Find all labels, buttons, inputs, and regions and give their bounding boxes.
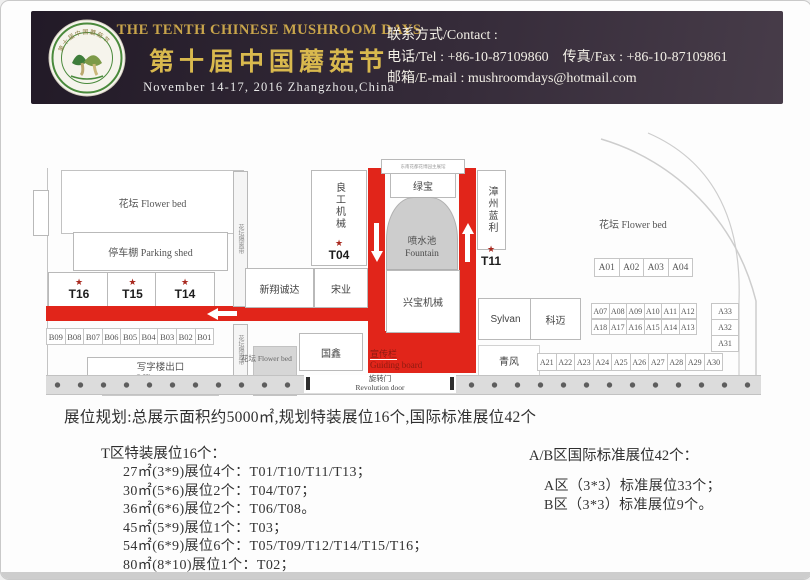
a-booth-cell: A09 bbox=[626, 303, 645, 319]
booth-label: 国鑫 bbox=[321, 345, 341, 360]
ab-zone-item: A区（3*3）标准展位33个； bbox=[544, 477, 721, 496]
b-booth-cell: B08 bbox=[65, 328, 85, 345]
b-booth-cell: B07 bbox=[83, 328, 103, 345]
door-frame-icon bbox=[306, 377, 310, 390]
a-booth-cell: A28 bbox=[667, 353, 687, 371]
booth-t15: ★ T15 bbox=[107, 272, 158, 308]
office-export-cn: 写字楼出口 bbox=[137, 363, 185, 374]
booth-label: Sylvan bbox=[490, 314, 520, 325]
a-booth-cell: A04 bbox=[668, 258, 694, 277]
arrow-left-icon bbox=[207, 306, 247, 321]
parking-shed-label: 停车棚 Parking shed bbox=[108, 244, 192, 259]
booth-kemai: 科迈 bbox=[530, 298, 581, 340]
b-booth-cell: B02 bbox=[176, 328, 196, 345]
booth-lianggong-t04: 良工机械 ★ T04 bbox=[311, 170, 367, 266]
booth-t11: ★ T11 bbox=[475, 245, 507, 268]
header-title-block: THE TENTH CHINESE MUSHROOM DAYS 第十届中国蘑菇节… bbox=[135, 19, 403, 97]
guiding-board: 宣传栏 Guiding board bbox=[370, 349, 422, 371]
door-en: Revolution door bbox=[356, 384, 405, 393]
a-booth-cell: A23 bbox=[574, 353, 594, 371]
flower-bed-small-label: 花坛 Flower bed bbox=[241, 353, 292, 364]
booth-label: 兴宝机械 bbox=[403, 294, 443, 309]
door-frame-icon bbox=[450, 377, 454, 390]
a-booth-cell: A33 bbox=[711, 303, 739, 320]
a-booth-cell: A08 bbox=[609, 303, 628, 319]
booth-t11-label: T11 bbox=[475, 254, 507, 268]
a-booth-cell: A18 bbox=[591, 319, 610, 335]
a-booth-cell: A17 bbox=[609, 319, 628, 335]
booth-guoxin: 国鑫 bbox=[299, 333, 363, 371]
a-booth-cell: A02 bbox=[619, 258, 645, 277]
b-booth-cell: B06 bbox=[102, 328, 122, 345]
a-booth-cell: A29 bbox=[685, 353, 705, 371]
isolation-strip-label: 花坛隔离带 bbox=[236, 224, 245, 254]
a-booth-cell: A30 bbox=[704, 353, 724, 371]
a-booth-cell: A25 bbox=[611, 353, 631, 371]
guiding-board-en: Guiding board bbox=[370, 360, 422, 370]
t-zone-list: 27㎡(3*9)展位4个：T01/T10/T11/T13；30㎡(5*6)展位2… bbox=[123, 464, 428, 575]
a-booth-row-bottom: A21A22A23A24A25A26A27A28A29A30 bbox=[537, 353, 723, 371]
a-booth-cell: A10 bbox=[644, 303, 663, 319]
a-booth-cell: A15 bbox=[644, 319, 663, 335]
arrow-down-icon bbox=[368, 223, 385, 271]
booth-label: 良工机械 bbox=[332, 177, 347, 235]
a-booth-row-mid2: A18A17A16A15A14A13 bbox=[591, 319, 697, 335]
a-booth-cell: A26 bbox=[630, 353, 650, 371]
a-booth-cell: A22 bbox=[556, 353, 576, 371]
booth-label: 绿宝 bbox=[413, 178, 433, 193]
t-zone-item: 27㎡(3*9)展位4个：T01/T10/T11/T13； bbox=[123, 464, 428, 483]
event-date: November 14-17, 2016 Zhangzhou,China bbox=[143, 80, 395, 95]
ab-zone-header: A/B区国际标准展位42个： bbox=[529, 444, 698, 465]
a-booth-cell: A01 bbox=[594, 258, 620, 277]
t-zone-item: 54㎡(6*9)展位6个：T05/T09/T12/T14/T15/T16； bbox=[123, 538, 428, 557]
revolving-door: 旋转门 Revolution door bbox=[304, 375, 456, 393]
b-booth-row: B09B08B07B06B05B04B03B02B01 bbox=[46, 328, 214, 345]
booth-songye: 宋业 bbox=[314, 268, 368, 308]
stage-strip-label: 东南花都花博园主展馆 bbox=[401, 164, 446, 170]
arrow-up-icon bbox=[459, 223, 476, 271]
header-banner: 第十届中国蘑菇节 THE TENTH CHINESE MUSHROOM DAYS… bbox=[31, 11, 783, 104]
a-booth-cell: A13 bbox=[679, 319, 698, 335]
ab-zone-item: B区（3*3）标准展位9个。 bbox=[544, 496, 721, 515]
booth-label: 漳州蓝利 bbox=[484, 186, 499, 234]
star-icon: ★ bbox=[75, 278, 83, 287]
mushroom-festival-logo-icon: 第十届中国蘑菇节 bbox=[47, 18, 127, 98]
fountain-cn: 喷水池 bbox=[408, 237, 437, 249]
isolation-strip-lower: 花坛隔离带 bbox=[233, 324, 248, 376]
title-english: THE TENTH CHINESE MUSHROOM DAYS bbox=[117, 22, 422, 39]
booth-label: 科迈 bbox=[546, 312, 566, 327]
tel-fax-line: 电话/Tel : +86-10-87109860 传真/Fax : +86-10… bbox=[387, 47, 728, 69]
map-left-notch bbox=[33, 190, 49, 236]
b-booth-cell: B03 bbox=[157, 328, 177, 345]
title-chinese: 第十届中国蘑菇节 bbox=[149, 42, 389, 78]
b-booth-cell: B01 bbox=[195, 328, 215, 345]
t-zone-header: T区特装展位16个： bbox=[101, 442, 226, 463]
ab-zone-list: A区（3*3）标准展位33个；B区（3*3）标准展位9个。 bbox=[544, 477, 721, 515]
contact-label: 联系方式/Contact : bbox=[387, 25, 728, 47]
a-booth-cell: A21 bbox=[537, 353, 557, 371]
a-booth-cell: A14 bbox=[661, 319, 680, 335]
t-zone-item: 36㎡(6*6)展位2个：T06/T08。 bbox=[123, 501, 428, 520]
booth-t16-label: T16 bbox=[69, 287, 90, 301]
star-icon: ★ bbox=[128, 278, 136, 287]
booth-xingbao: 兴宝机械 bbox=[386, 270, 460, 333]
poster-page: 第十届中国蘑菇节 THE TENTH CHINESE MUSHROOM DAYS… bbox=[0, 0, 810, 580]
fountain-en: Fountain bbox=[405, 249, 439, 261]
booth-lvbao: 绿宝 bbox=[390, 173, 456, 198]
email-line: 邮箱/E-mail : mushroomdays@hotmail.com bbox=[387, 68, 728, 90]
t-zone-item: 45㎡(5*9)展位1个：T03； bbox=[123, 520, 428, 539]
a-booth-cell: A16 bbox=[626, 319, 645, 335]
parking-shed: 停车棚 Parking shed bbox=[73, 232, 228, 271]
contact-block: 联系方式/Contact : 电话/Tel : +86-10-87109860 … bbox=[387, 11, 728, 104]
booth-t14: ★ T14 bbox=[155, 272, 215, 308]
b-booth-cell: B05 bbox=[120, 328, 140, 345]
star-icon: ★ bbox=[475, 245, 507, 254]
booth-qingfeng: 青风 bbox=[478, 345, 540, 376]
booth-t14-label: T14 bbox=[175, 287, 196, 301]
a-booth-cell: A32 bbox=[711, 319, 739, 336]
a-booth-cell: A03 bbox=[643, 258, 669, 277]
star-icon: ★ bbox=[181, 278, 189, 287]
fountain: 喷水池 Fountain bbox=[386, 197, 458, 270]
booth-xinxiangchengda: 新翔诚达 bbox=[245, 268, 314, 308]
guiding-board-cn: 宣传栏 bbox=[370, 349, 397, 360]
booth-label: 新翔诚达 bbox=[260, 281, 300, 296]
a-booth-cell: A27 bbox=[648, 353, 668, 371]
booth-t16: ★ T16 bbox=[48, 272, 110, 308]
booth-plan-headline: 展位规划:总展示面积约5000㎡,规划特装展位16个,国际标准展位42个 bbox=[64, 405, 536, 427]
booth-t15-label: T15 bbox=[122, 287, 143, 301]
star-icon: ★ bbox=[335, 239, 343, 248]
stage-strip: 东南花都花博园主展馆 bbox=[381, 159, 465, 174]
b-booth-cell: B09 bbox=[46, 328, 66, 345]
a-booth-cell: A12 bbox=[679, 303, 698, 319]
booth-label: 宋业 bbox=[331, 281, 351, 296]
a-booth-cell: A07 bbox=[591, 303, 610, 319]
booth-zhangzhou-t11-strip: 漳州蓝利 bbox=[477, 170, 506, 250]
a-booth-row-top: A01A02A03A04 bbox=[594, 258, 693, 277]
t-zone-item: 30㎡(5*6)展位2个：T04/T07； bbox=[123, 483, 428, 502]
a-booth-cell: A24 bbox=[593, 353, 613, 371]
a-booth-cell: A11 bbox=[661, 303, 680, 319]
a-booth-row-mid1: A07A08A09A10A11A12 bbox=[591, 303, 697, 319]
flower-bed-left: 花坛 Flower bed bbox=[61, 170, 244, 234]
booth-label: 青风 bbox=[499, 353, 519, 368]
a-booth-column-right: A33A32A31 bbox=[711, 303, 739, 352]
b-booth-cell: B04 bbox=[139, 328, 159, 345]
a-booth-cell: A31 bbox=[711, 335, 739, 352]
flower-bed-left-label: 花坛 Flower bed bbox=[119, 195, 187, 210]
booth-sylvan: Sylvan bbox=[478, 298, 533, 340]
booth-t04-label: T04 bbox=[329, 248, 350, 262]
